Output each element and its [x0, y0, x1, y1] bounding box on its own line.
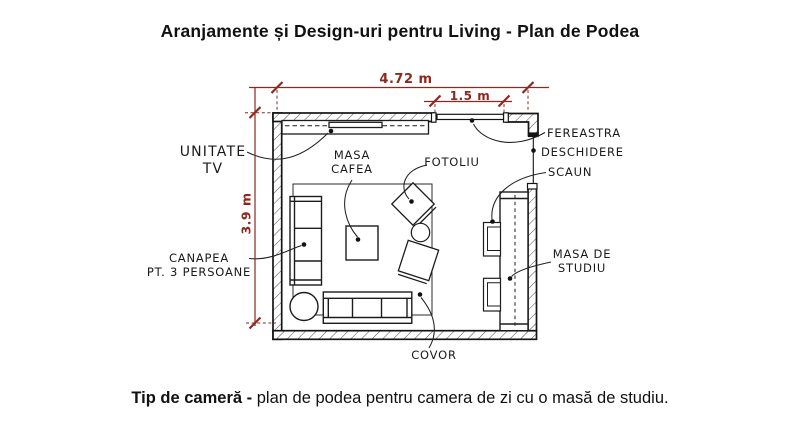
wall-caps [432, 113, 539, 189]
round-table [290, 293, 318, 321]
coffee-table [346, 226, 378, 260]
corner-stub-cap [529, 133, 539, 137]
floor-plan-drawing [0, 0, 800, 437]
dim-text-room-width: 4.72 m [366, 72, 446, 87]
caption-text: plan de podea pentru camera de zi cu o m… [257, 389, 669, 407]
side-table [411, 223, 429, 241]
desk-chair-b [484, 278, 501, 311]
floor-plan-page: Aranjamente și Design-uri pentru Living … [0, 0, 800, 437]
dim-text-window: 1.5 m [430, 89, 510, 103]
wall-corner-top-right [506, 114, 538, 136]
label-coffee-table: MASA CAFEA [312, 149, 392, 176]
sofa-left [290, 197, 322, 286]
label-opening: DESCHIDERE [541, 146, 624, 160]
dim-text-room-depth: 3.9 m [239, 184, 254, 244]
sofa-bottom [323, 292, 412, 323]
label-window: FEREASTRA [547, 127, 621, 141]
desk-chair-a [484, 223, 501, 257]
tv-unit [282, 121, 429, 135]
label-armchair: FOTOLIU [412, 156, 492, 170]
caption: Tip de cameră - plan de podea pentru cam… [0, 389, 800, 408]
window [437, 114, 504, 119]
armchair-1 [392, 183, 437, 228]
wall-bottom [273, 331, 537, 340]
label-carpet: COVOR [394, 349, 474, 363]
label-tv-unit: UNITATE TV [153, 144, 273, 178]
label-study-table: MASA DE STUDIU [542, 248, 622, 275]
right-wall-cap [528, 184, 538, 190]
tv [329, 122, 382, 127]
study-desk [500, 192, 528, 331]
wall-right [528, 184, 537, 331]
caption-lead: Tip de cameră - [131, 389, 256, 407]
wall-left [273, 113, 282, 339]
opening-dot [531, 148, 536, 153]
window-cap-left [432, 113, 437, 122]
label-sofa: CANAPEA PT. 3 PERSOANE [144, 252, 254, 279]
label-chair: SCAUN [548, 166, 592, 180]
window-cap-right [504, 113, 509, 122]
